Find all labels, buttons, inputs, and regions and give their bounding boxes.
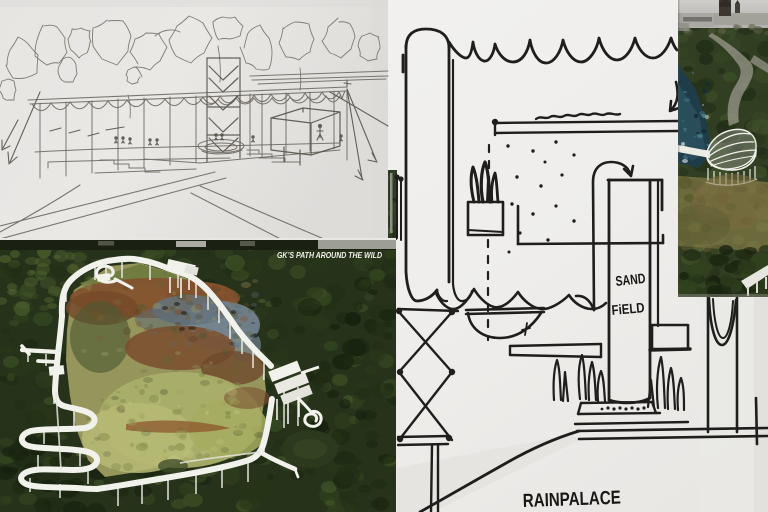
svg-text:GK’S PATH AROUND THE WILD: GK’S PATH AROUND THE WILD (277, 251, 382, 260)
svg-text:SAND: SAND (615, 270, 647, 289)
svg-text:FiELD: FiELD (611, 299, 645, 318)
svg-text:RAINPALACE: RAINPALACE (522, 488, 621, 512)
